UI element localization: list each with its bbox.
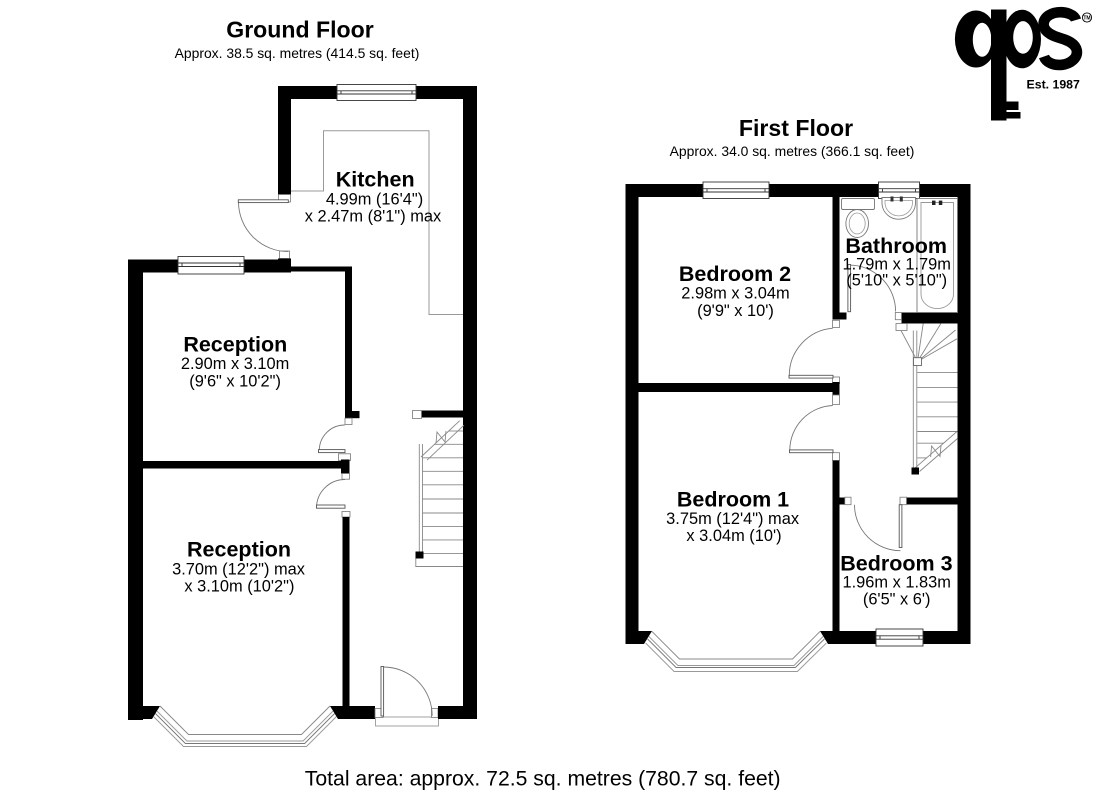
svg-text:Bedroom 2: Bedroom 2	[679, 262, 791, 286]
svg-text:Bathroom: Bathroom	[845, 234, 947, 258]
svg-text:4.99m (16'4"): 4.99m (16'4")	[326, 191, 423, 209]
svg-text:1.96m x 1.83m: 1.96m x 1.83m	[842, 574, 950, 592]
svg-text:2.90m x 3.10m: 2.90m x 3.10m	[181, 355, 289, 373]
svg-text:Approx. 38.5 sq. metres (414.5: Approx. 38.5 sq. metres (414.5 sq. feet)	[175, 45, 420, 61]
svg-text:(9'6" x 10'2"): (9'6" x 10'2")	[189, 372, 281, 390]
svg-text:Approx. 34.0 sq. metres (366.1: Approx. 34.0 sq. metres (366.1 sq. feet)	[670, 143, 915, 159]
svg-text:(9'9" x 10'): (9'9" x 10')	[697, 302, 774, 320]
svg-text:3.75m (12'4") max: 3.75m (12'4") max	[666, 510, 800, 528]
svg-text:Bedroom 3: Bedroom 3	[840, 552, 952, 576]
svg-text:2.98m x 3.04m: 2.98m x 3.04m	[681, 285, 789, 303]
svg-text:First Floor: First Floor	[739, 115, 853, 141]
svg-text:Est. 1987: Est. 1987	[1027, 78, 1080, 92]
svg-text:Kitchen: Kitchen	[336, 168, 415, 192]
svg-text:3.70m (12'2") max: 3.70m (12'2") max	[172, 561, 306, 579]
svg-text:(5'10" x 5'10"): (5'10" x 5'10")	[846, 272, 947, 290]
svg-text:(6'5" x 6'): (6'5" x 6')	[863, 591, 931, 609]
svg-text:Bedroom 1: Bedroom 1	[677, 488, 789, 512]
svg-text:TM: TM	[1083, 15, 1090, 21]
svg-text:Ground Floor: Ground Floor	[226, 17, 374, 43]
svg-text:1.79m x 1.79m: 1.79m x 1.79m	[842, 255, 950, 273]
svg-text:x 3.10m (10'2"): x 3.10m (10'2")	[184, 578, 294, 596]
svg-text:x 3.04m (10'): x 3.04m (10')	[686, 527, 781, 545]
svg-text:Total area: approx. 72.5 sq. m: Total area: approx. 72.5 sq. metres (780…	[305, 768, 781, 791]
svg-text:Reception: Reception	[183, 333, 287, 357]
svg-text:x 2.47m (8'1") max: x 2.47m (8'1") max	[305, 208, 442, 226]
svg-text:Reception: Reception	[187, 538, 291, 562]
